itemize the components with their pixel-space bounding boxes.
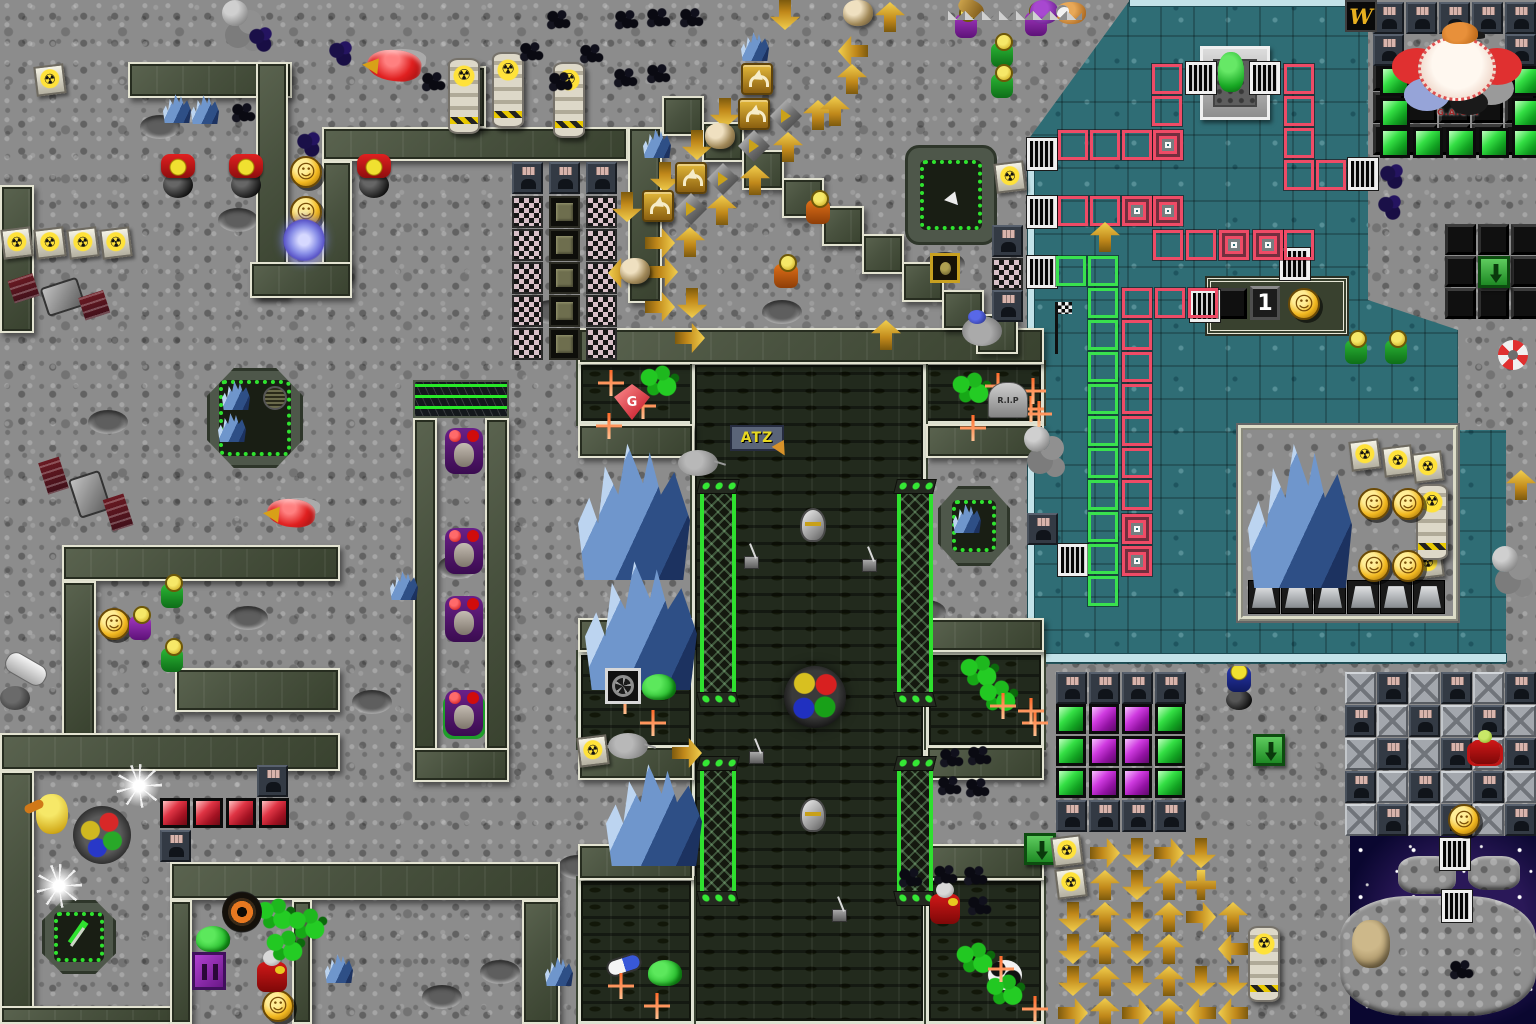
w-letter-tile[interactable]: W (1345, 0, 1377, 32)
bug-swarm[interactable] (964, 776, 990, 800)
yellow-club-alien[interactable] (36, 794, 68, 834)
steel-tile (1505, 771, 1536, 803)
red-gem[interactable] (160, 798, 190, 828)
gold-arrow-down[interactable] (1122, 902, 1152, 932)
crystal[interactable] (325, 953, 353, 983)
donut-ring[interactable] (222, 891, 262, 933)
red-path-marker (1090, 196, 1120, 226)
gold-arrow-left[interactable] (1186, 998, 1216, 1024)
magenta-gem[interactable] (1089, 736, 1119, 766)
white-splat (36, 864, 82, 908)
red-eyed-alien[interactable] (445, 428, 483, 474)
machine-tile (512, 162, 543, 194)
radioactive-barrel[interactable]: ☢ (1411, 450, 1444, 483)
machine-tile (1345, 771, 1376, 803)
vent-grille (1058, 544, 1088, 576)
green-path-marker (1088, 288, 1118, 318)
gold-arrow-up[interactable] (1154, 870, 1184, 900)
green-soldier[interactable] (1382, 330, 1410, 366)
green-gem[interactable] (1380, 98, 1410, 128)
beetle-tile[interactable] (930, 253, 960, 283)
radioactive-tower[interactable]: ☢ (448, 58, 480, 134)
bug-swarm[interactable] (645, 6, 671, 30)
crystal-cluster[interactable] (578, 438, 690, 580)
gaga-machine[interactable]: G.A.G.A (1408, 22, 1508, 117)
gold-arrow-down[interactable] (1122, 870, 1152, 900)
red-gem[interactable] (193, 798, 223, 828)
lever-pedestal[interactable] (42, 900, 116, 974)
frog-creature[interactable] (648, 960, 682, 986)
gold-bounce-arrow[interactable] (741, 63, 773, 95)
green-bridge (897, 483, 933, 703)
frog-creature[interactable] (642, 674, 676, 700)
gold-bounce-arrow[interactable] (675, 162, 707, 194)
dark-tile (1445, 256, 1476, 287)
red-path-marker (1122, 130, 1152, 160)
smiley-coin[interactable]: ☺ (1288, 288, 1320, 320)
diamond-arrow-tile[interactable] (770, 100, 802, 132)
machine-tile (1089, 672, 1120, 704)
boulder[interactable] (843, 0, 873, 26)
red-path-marker (1284, 64, 1314, 94)
magenta-gem[interactable] (1122, 736, 1152, 766)
radioactive-barrel[interactable]: ☢ (99, 226, 132, 259)
spike-row (948, 0, 1082, 20)
bug-swarm[interactable] (1448, 958, 1474, 982)
bug-swarm[interactable] (938, 746, 964, 770)
green-gem[interactable] (1512, 66, 1536, 96)
announcer-pedestal[interactable] (905, 145, 997, 245)
moon-crater (762, 300, 802, 324)
gold-arrow-right[interactable] (1186, 902, 1216, 932)
checker-screen-tile (512, 262, 543, 294)
green-bridge (700, 760, 736, 902)
solar-satellite[interactable] (38, 441, 134, 547)
boulder[interactable] (620, 258, 650, 284)
green-path-marker (1088, 512, 1118, 542)
gold-arrow-up[interactable] (1154, 966, 1184, 996)
red-path-marker (1122, 416, 1152, 446)
red-target-marker (1253, 230, 1283, 260)
red-knight-creature[interactable] (928, 882, 962, 926)
bomb-rider-creature[interactable] (356, 152, 392, 198)
gold-arrow-right[interactable] (1122, 998, 1152, 1024)
gold-arrow-down[interactable] (1122, 966, 1152, 996)
gold-arrow-right[interactable] (1154, 838, 1184, 868)
gold-arrow-down[interactable] (1058, 966, 1088, 996)
bug-swarm[interactable] (547, 70, 573, 94)
machine-tile (1473, 771, 1504, 803)
gold-arrow-left[interactable] (1218, 934, 1248, 964)
magenta-gem[interactable] (1122, 704, 1152, 734)
lifesaver-ring[interactable] (1498, 340, 1528, 370)
gold-arrow-up[interactable] (1154, 902, 1184, 932)
teleporter-pad[interactable] (73, 806, 131, 864)
gold-arrow-up[interactable] (875, 2, 905, 32)
dark-splat (1378, 163, 1406, 189)
red-eyed-alien[interactable] (445, 596, 483, 642)
magenta-gem[interactable] (1122, 768, 1152, 798)
wall-block (413, 748, 509, 782)
green-gem[interactable] (1512, 128, 1536, 158)
bug-swarm[interactable] (420, 70, 446, 94)
red-target-marker (1122, 196, 1152, 226)
gold-arrow-up[interactable] (1154, 934, 1184, 964)
smiley-coin[interactable]: ☺ (1358, 550, 1390, 582)
lever-console[interactable] (740, 543, 762, 571)
bug-swarm[interactable] (230, 101, 256, 125)
red-path-marker (1122, 352, 1152, 382)
orange-robot[interactable] (803, 190, 833, 226)
crystal-pedestal[interactable] (207, 368, 303, 468)
machine-tile (1377, 672, 1408, 704)
red-target-marker (1219, 230, 1249, 260)
bug-swarm[interactable] (962, 864, 988, 888)
dark-tile (1445, 288, 1476, 319)
wall-block (62, 581, 96, 737)
gold-arrow-up[interactable] (1154, 998, 1184, 1024)
radioactive-barrel[interactable]: ☢ (1050, 834, 1083, 867)
dark-splat (247, 26, 275, 52)
radioactive-barrel[interactable]: ☢ (1348, 438, 1381, 471)
steel-tile (1377, 771, 1408, 803)
gold-arrow-down[interactable] (1122, 838, 1152, 868)
radioactive-barrel[interactable]: ☢ (66, 226, 99, 259)
screen-tile (549, 196, 580, 228)
ramp-tile (1413, 580, 1445, 614)
wall-block (62, 545, 340, 581)
red-path-marker (1152, 96, 1182, 126)
checker-screen-tile (586, 196, 617, 228)
green-soldier[interactable] (158, 574, 186, 610)
checker-screen-tile (992, 258, 1023, 290)
dark-splat (295, 131, 323, 157)
moon-crater (218, 208, 258, 232)
green-arrow-tile[interactable] (1253, 734, 1285, 766)
green-arrow-tile[interactable] (1478, 256, 1510, 288)
helmet-rat[interactable] (962, 316, 1002, 346)
wall-block (170, 862, 560, 900)
magenta-gem[interactable] (1089, 768, 1119, 798)
wall-block (926, 618, 1044, 652)
steel-tile (1505, 705, 1536, 737)
counter-tile[interactable]: 1 (1250, 286, 1280, 320)
dark-tile (1445, 224, 1476, 255)
gold-arrow-down[interactable] (1058, 902, 1088, 932)
moon-crater (480, 960, 520, 984)
gold-arrow-left[interactable] (1218, 998, 1248, 1024)
ramp-tile (1380, 580, 1412, 614)
stair-wall-block (862, 234, 904, 274)
red-rocket[interactable] (250, 482, 332, 548)
wall-block (170, 900, 192, 1024)
cannon[interactable] (0, 644, 54, 714)
screen-tile (549, 229, 580, 261)
checker-screen-tile (586, 229, 617, 261)
green-gem[interactable] (1155, 704, 1185, 734)
machine-tile (1505, 2, 1536, 34)
green-gem[interactable] (1056, 768, 1086, 798)
machine-tile (992, 290, 1023, 322)
red-target-marker (1153, 196, 1183, 226)
checkered-flag[interactable] (1044, 300, 1070, 358)
red-path-marker (1188, 288, 1218, 318)
green-gem[interactable] (1155, 768, 1185, 798)
green-slime-splat (982, 972, 1026, 1008)
gold-arrow-down[interactable] (1186, 966, 1216, 996)
gold-arrow-up[interactable] (837, 64, 867, 94)
bug-swarm[interactable] (578, 42, 604, 66)
green-path-marker (1088, 384, 1118, 414)
red-gem[interactable] (226, 798, 256, 828)
radioactive-barrel[interactable]: ☢ (1381, 444, 1414, 477)
machine-tile (160, 830, 191, 862)
smiley-coin[interactable]: ☺ (1392, 550, 1424, 582)
machine-tile (1377, 804, 1408, 836)
green-gem[interactable] (1512, 98, 1536, 128)
bug-swarm[interactable] (932, 863, 958, 887)
tombstone: R.I.P (988, 382, 1028, 418)
red-gem[interactable] (259, 798, 289, 828)
dark-tile (1511, 256, 1536, 287)
machine-tile (992, 225, 1023, 257)
machine-tile (1409, 705, 1440, 737)
wheel-tile[interactable] (605, 668, 641, 704)
rock-island (1468, 856, 1520, 890)
green-gem[interactable] (1155, 736, 1185, 766)
gold-arrow-up[interactable] (1090, 998, 1120, 1024)
gold-arrow-up[interactable] (1506, 470, 1536, 500)
red-path-marker (1152, 64, 1182, 94)
red-path-marker (1058, 196, 1088, 226)
dark-tile (1216, 288, 1247, 319)
lever-console[interactable] (858, 546, 880, 574)
gold-arrow-up[interactable] (707, 195, 737, 225)
gold-arrow-up[interactable] (675, 227, 705, 257)
escape-capsule[interactable] (800, 508, 826, 542)
gold-arrow-up[interactable] (1090, 870, 1120, 900)
green-path-marker (1056, 256, 1086, 286)
bug-swarm[interactable] (678, 6, 704, 30)
bug-swarm[interactable] (966, 894, 992, 918)
fortress-floor (578, 878, 694, 1024)
gold-arrow-up[interactable] (1218, 902, 1248, 932)
orange-robot[interactable] (771, 254, 801, 290)
gray-orb-stack[interactable] (1490, 546, 1536, 604)
steel-tile (1377, 705, 1408, 737)
machine-tile (549, 162, 580, 194)
machine-tile (1377, 738, 1408, 770)
teal-zone-trim (1028, 654, 1506, 662)
gold-arrow-up[interactable] (1090, 966, 1120, 996)
red-target-marker (1122, 514, 1152, 544)
checker-screen-tile (512, 295, 543, 327)
red-path-marker (1284, 128, 1314, 158)
dark-tile (1478, 288, 1509, 319)
white-splat (116, 764, 162, 808)
steel-tile (1345, 672, 1376, 704)
red-robed-creature[interactable] (1468, 730, 1502, 766)
green-path-marker (1088, 576, 1118, 606)
red-path-marker (1284, 96, 1314, 126)
green-blob-creature[interactable] (1218, 52, 1244, 92)
red-eyed-alien-green[interactable] (445, 690, 483, 736)
smiley-coin[interactable]: ☺ (1392, 488, 1424, 520)
red-path-marker (1284, 160, 1314, 190)
purple-soldier[interactable] (126, 606, 154, 642)
screen-tile (549, 262, 580, 294)
frog-creature[interactable] (196, 926, 230, 952)
machine-tile (1155, 672, 1186, 704)
diamond-arrow-tile[interactable] (675, 193, 707, 225)
gold-arrow-up[interactable] (1090, 934, 1120, 964)
machine-tile (1505, 804, 1536, 836)
signal-panel[interactable] (413, 380, 509, 418)
steel-tile (1345, 738, 1376, 770)
bug-swarm[interactable] (936, 774, 962, 798)
smiley-coin[interactable]: ☺ (290, 156, 322, 188)
gold-arrow-right[interactable] (1090, 838, 1120, 868)
bug-swarm[interactable] (966, 744, 992, 768)
moon-rat[interactable] (678, 450, 718, 476)
green-gem[interactable] (1056, 736, 1086, 766)
machine-tile (1122, 672, 1153, 704)
radioactive-barrel[interactable]: ☢ (33, 63, 66, 96)
gold-arrow-up[interactable] (1090, 902, 1120, 932)
radioactive-barrel[interactable]: ☢ (576, 734, 609, 767)
steel-tile (1441, 771, 1472, 803)
dark-splat (1376, 194, 1404, 220)
red-path-marker (1284, 230, 1314, 260)
checker-screen-tile (586, 328, 617, 360)
escape-capsule[interactable] (800, 798, 826, 832)
radioactive-tower[interactable]: ☢ (1248, 926, 1280, 1002)
red-path-marker (1122, 448, 1152, 478)
gold-arrow-right[interactable] (1058, 998, 1088, 1024)
machine-tile (1155, 800, 1186, 832)
radioactive-barrel[interactable]: ☢ (1054, 866, 1087, 899)
wall-block (0, 1006, 180, 1024)
green-gem[interactable] (1446, 128, 1476, 158)
moon-crater (88, 410, 128, 434)
lever-console[interactable] (745, 738, 767, 766)
vent-grille (1027, 256, 1057, 288)
bug-swarm[interactable] (613, 8, 639, 32)
red-path-marker (1090, 130, 1120, 160)
red-path-marker (1122, 384, 1152, 414)
vent-grille (1027, 196, 1057, 228)
gold-arrow-cross[interactable] (1186, 870, 1216, 900)
red-path-marker (1316, 160, 1346, 190)
bug-swarm[interactable] (612, 66, 638, 90)
checker-screen-tile (512, 196, 543, 228)
steel-tile (1409, 672, 1440, 704)
blue-bomber-creature[interactable] (1224, 666, 1254, 710)
machine-tile (1373, 2, 1404, 34)
moon-crater (352, 690, 392, 714)
steel-tile (1473, 672, 1504, 704)
totem-tile[interactable] (192, 952, 226, 990)
gold-arrow-down[interactable] (1122, 934, 1152, 964)
vent-grille (1250, 62, 1280, 94)
chaos-ball[interactable] (784, 666, 846, 728)
smiley-coin[interactable]: ☺ (262, 990, 294, 1022)
green-gem[interactable] (1056, 704, 1086, 734)
gold-bounce-arrow[interactable] (642, 190, 674, 222)
smiley-coin[interactable]: ☺ (1358, 488, 1390, 520)
wall-block (522, 900, 560, 1024)
checker-screen-tile (586, 262, 617, 294)
green-path-marker (1088, 544, 1118, 574)
green-soldier[interactable] (158, 638, 186, 674)
green-slime-splat (975, 678, 1019, 714)
green-gem[interactable] (1380, 66, 1410, 96)
radioactive-barrel[interactable]: ☢ (33, 226, 66, 259)
boulder[interactable] (705, 123, 735, 149)
gold-arrow-down[interactable] (770, 0, 800, 30)
green-soldier[interactable] (988, 64, 1016, 100)
gold-arrow-down[interactable] (1058, 934, 1088, 964)
radioactive-barrel[interactable]: ☢ (993, 160, 1026, 193)
gold-bounce-arrow[interactable] (738, 98, 770, 130)
green-slime-splat (284, 906, 328, 942)
gold-arrow-down[interactable] (1218, 966, 1248, 996)
magenta-gem[interactable] (1089, 704, 1119, 734)
machine-tile (1505, 738, 1536, 770)
bug-swarm[interactable] (518, 40, 544, 64)
bomb-rider-creature[interactable] (160, 152, 196, 198)
crystal[interactable] (191, 94, 219, 124)
bomb-rider-creature[interactable] (228, 152, 264, 198)
plasma-swirl[interactable] (283, 218, 325, 262)
machine-tile (1373, 34, 1404, 66)
gold-arrow-down[interactable] (677, 288, 707, 318)
machine-tile (1056, 800, 1087, 832)
bug-swarm[interactable] (897, 866, 923, 890)
bug-swarm[interactable] (645, 62, 671, 86)
green-path-marker (1088, 448, 1118, 478)
green-gem[interactable] (1413, 128, 1443, 158)
lever-console[interactable] (828, 896, 850, 924)
gold-arrow-down[interactable] (1186, 838, 1216, 868)
green-soldier[interactable] (1342, 330, 1370, 366)
hamster-creature[interactable] (1352, 920, 1390, 968)
radioactive-barrel[interactable]: ☢ (0, 226, 33, 259)
red-target-marker (1153, 130, 1183, 160)
red-path-marker (1122, 480, 1152, 510)
red-eyed-alien[interactable] (445, 528, 483, 574)
bug-swarm[interactable] (545, 8, 571, 32)
red-path-marker (1186, 230, 1216, 260)
vent-grille (1186, 62, 1216, 94)
red-path-marker (1122, 288, 1152, 318)
dark-splat (327, 40, 355, 66)
green-path-marker (1088, 480, 1118, 510)
checker-screen-tile (512, 229, 543, 261)
green-gem[interactable] (1380, 128, 1410, 158)
green-gem[interactable] (1479, 128, 1509, 158)
crystal[interactable] (741, 31, 769, 61)
machine-tile (1027, 513, 1058, 545)
machine-tile (1441, 672, 1472, 704)
moon-rat[interactable] (608, 733, 648, 759)
teal-zone-trim (1130, 0, 1370, 6)
diamond-arrow-tile[interactable] (707, 163, 739, 195)
gray-orb-stack[interactable] (1022, 426, 1068, 484)
smiley-coin[interactable]: ☺ (1448, 804, 1480, 836)
gold-arrow-left[interactable] (838, 36, 868, 66)
green-slime-splat (952, 940, 996, 976)
